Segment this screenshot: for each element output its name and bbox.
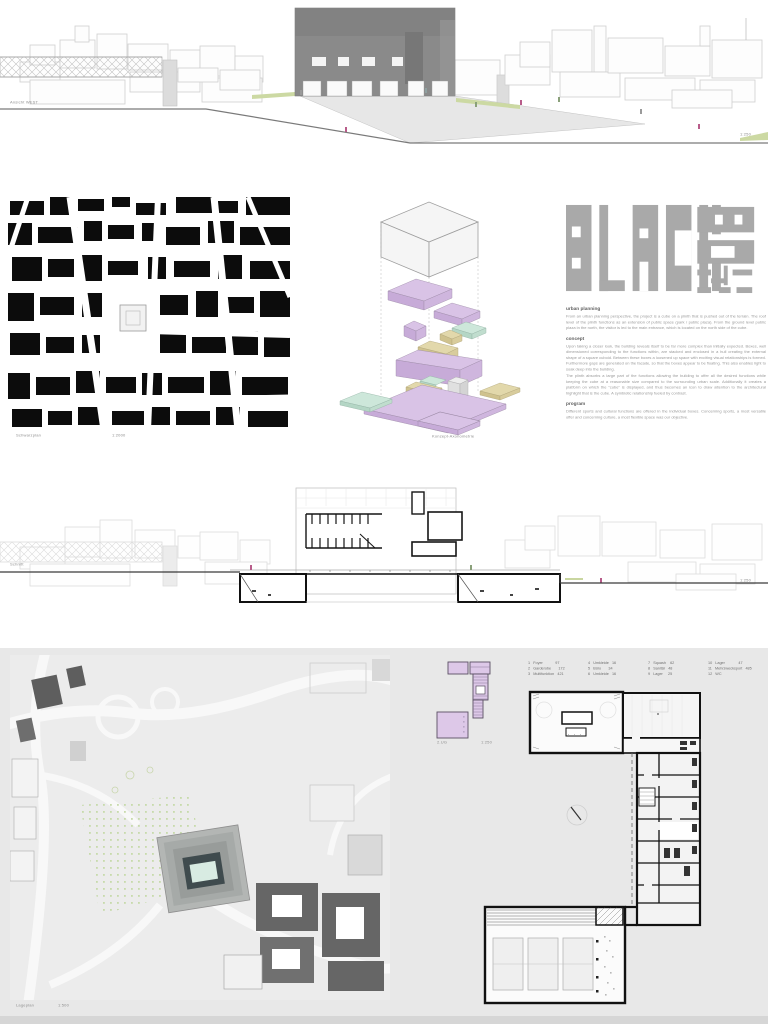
exploded-axonometric (330, 195, 545, 440)
section-drawing (0, 482, 768, 622)
legend-row: 6 Umkleide 16 (588, 671, 648, 677)
elevation-drawing (0, 0, 768, 150)
hull-cube (381, 202, 478, 277)
black-logo (566, 203, 762, 294)
urban-planning-heading: urban planning (566, 306, 766, 312)
cube-building (295, 8, 455, 96)
program-heading: program (566, 401, 766, 407)
program-body: Different sports and cultural functions … (566, 409, 766, 421)
section-scale: 1:250 (740, 578, 751, 583)
legend-column: 10 Lager 47 11 Mehrzwecksport 485 12 WC (708, 660, 768, 677)
elevation-scale: 1:250 (740, 132, 751, 137)
legend-row: 3 Multifunktion 421 (528, 671, 588, 677)
figure-ground-map (8, 197, 290, 430)
room-legend: 1 Foyer 97 2 Garderobe 172 3 Multifunkti… (528, 660, 768, 677)
legend-column: 7 Squash 62 8 Sanitär 48 9 Lager 25 (648, 660, 708, 677)
legend-row: 12 WC (708, 671, 768, 677)
room-band (632, 753, 700, 925)
entrance-wing (623, 693, 700, 754)
ground-floor-plan (482, 688, 722, 1018)
concept-heading: concept (566, 336, 766, 342)
elevation-label: Ansicht WEST (10, 100, 38, 105)
section-label: Schnitt (10, 562, 24, 567)
legend-column: 1 Foyer 97 2 Garderobe 172 3 Multifunkti… (528, 660, 588, 677)
concept-body-1: Upon taking a closer look, the building … (566, 343, 766, 372)
concept-body-2: The plinth absorbs a large part of the f… (566, 373, 766, 396)
project-building (157, 825, 250, 913)
essay-column: urban planning From an urban planning pe… (566, 306, 766, 425)
sports-hall (485, 907, 637, 1003)
basement-label: 2.UG (437, 740, 447, 745)
legend-row: 9 Lager 25 (648, 671, 708, 677)
siteplan-label: Lageplan (16, 1003, 34, 1008)
north-arrow-icon (567, 805, 587, 825)
site-plan (10, 655, 390, 1000)
multifunction-hall (530, 692, 623, 753)
site-marker (120, 305, 146, 331)
program-boxes (340, 279, 520, 435)
siteplan-scale: 1:500 (58, 1003, 69, 1008)
skyline-right (455, 18, 762, 108)
presentation-board: Ansicht WEST 1:250 (0, 0, 768, 1024)
schwarzplan-scale: 1:2000 (112, 433, 125, 438)
urban-planning-body: From an urban planning perspective, the … (566, 314, 766, 331)
schwarzplan-label: Schwarzplan (16, 433, 41, 438)
axonometric-label: Konzept-Axonometrie (432, 434, 474, 439)
legend-column: 4 Umkleide 16 5 Büro 34 6 Umkleide 16 (588, 660, 648, 677)
